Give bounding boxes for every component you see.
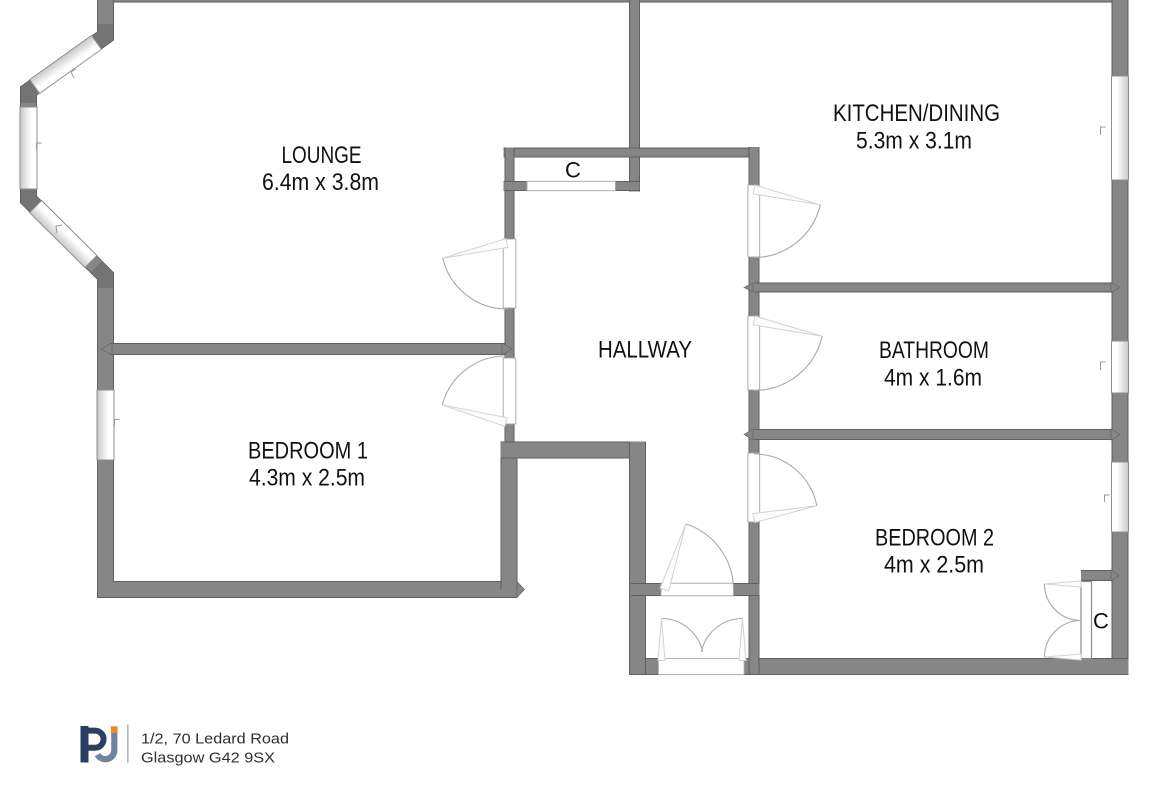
svg-text:BEDROOM 2: BEDROOM 2 — [875, 525, 994, 552]
svg-text:HALLWAY: HALLWAY — [598, 337, 692, 364]
svg-text:4m x 1.6m: 4m x 1.6m — [884, 365, 982, 392]
svg-text:Glasgow G42 9SX: Glasgow G42 9SX — [141, 751, 275, 767]
svg-text:LOUNGE: LOUNGE — [282, 142, 362, 169]
svg-text:6.4m x 3.8m: 6.4m x 3.8m — [262, 169, 379, 196]
svg-text:BATHROOM: BATHROOM — [879, 337, 989, 364]
svg-text:C: C — [1093, 609, 1109, 634]
svg-text:BEDROOM 1: BEDROOM 1 — [248, 438, 368, 465]
svg-text:1/2, 70 Ledard Road: 1/2, 70 Ledard Road — [141, 732, 289, 748]
svg-text:KITCHEN/DINING: KITCHEN/DINING — [833, 100, 1000, 127]
svg-text:4m x 2.5m: 4m x 2.5m — [884, 552, 984, 579]
svg-text:4.3m x 2.5m: 4.3m x 2.5m — [249, 465, 365, 492]
svg-text:C: C — [565, 158, 581, 183]
svg-text:5.3m x 3.1m: 5.3m x 3.1m — [856, 128, 972, 155]
